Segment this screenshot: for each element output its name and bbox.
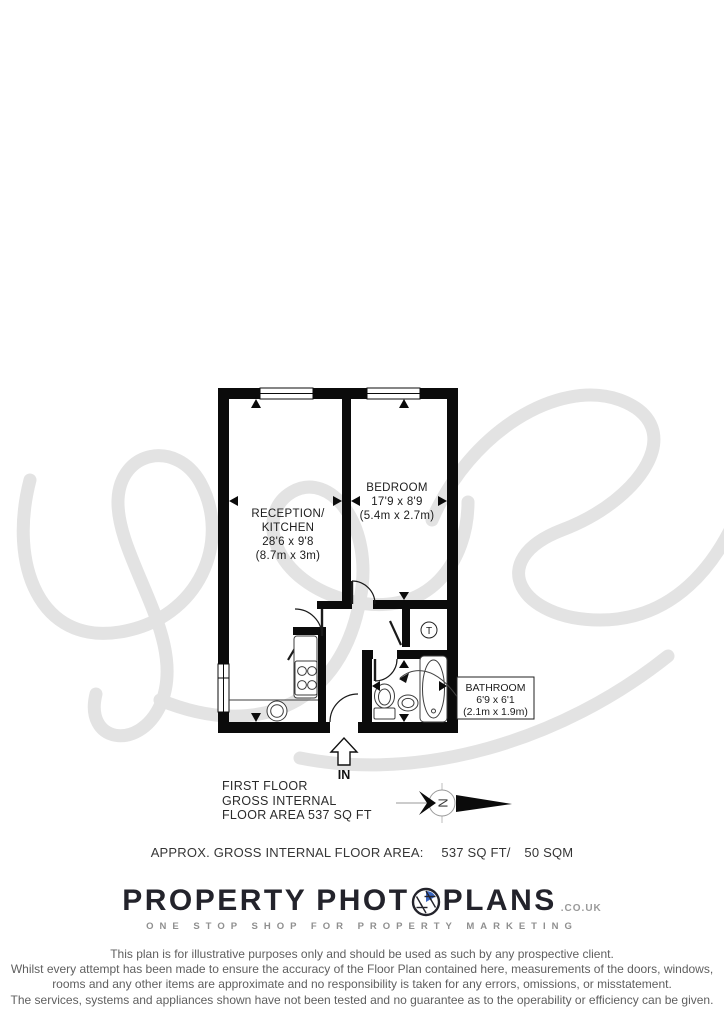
disclaimer-line4: The services, systems and appliances sho… bbox=[0, 993, 724, 1008]
basin-icon bbox=[398, 695, 418, 711]
brand-word-plans: PLANS bbox=[443, 883, 557, 919]
arrow-down-bathroom bbox=[399, 714, 409, 722]
arrow-up-reception bbox=[251, 399, 261, 408]
bathroom-callout: BATHROOM 6'9 x 6'1 (2.1m x 1.9m) bbox=[399, 671, 534, 719]
entrance-arrow-icon bbox=[331, 738, 357, 765]
bedroom-door bbox=[352, 581, 375, 604]
window-kitchen-left bbox=[218, 664, 229, 712]
window-bedroom-top bbox=[367, 388, 420, 399]
bedroom-label: BEDROOM bbox=[366, 482, 428, 494]
disclaimer: This plan is for illustrative purposes o… bbox=[0, 947, 724, 1008]
area-summary-metric: 50 SQM bbox=[524, 845, 573, 860]
bathtub-icon bbox=[420, 656, 447, 722]
brand-logo: PROPERTY PHOT PLANS .CO.UK bbox=[0, 883, 724, 919]
floor-plan: T RECEPTION/ KITCHEN 28'6 x 9'8 (8.7m x … bbox=[0, 0, 724, 1024]
arrow-down-reception bbox=[251, 713, 261, 722]
kitchen-fixtures bbox=[229, 636, 318, 721]
stove-icon bbox=[295, 661, 317, 695]
bedroom-dims-ft: 17'9 x 8'9 bbox=[371, 496, 423, 508]
area-summary-label: APPROX. GROSS INTERNAL FLOOR AREA: bbox=[151, 845, 424, 860]
bathroom-door bbox=[375, 659, 397, 681]
reception-dims-ft: 28'6 x 9'8 bbox=[262, 536, 314, 548]
brand-word-property: PROPERTY bbox=[122, 883, 307, 919]
toilet-icon bbox=[374, 684, 395, 719]
entrance-marker: IN bbox=[331, 738, 357, 782]
brand-domain: .CO.UK bbox=[561, 903, 602, 919]
reception-label-2: KITCHEN bbox=[262, 522, 315, 534]
tank-symbol: T bbox=[421, 622, 437, 638]
bathroom-dims-m: (2.1m x 1.9m) bbox=[463, 706, 528, 718]
disclaimer-line3: rooms and any other items are approximat… bbox=[0, 977, 724, 992]
bedroom-dims-m: (5.4m x 2.7m) bbox=[360, 510, 435, 522]
floorplan-page: T RECEPTION/ KITCHEN 28'6 x 9'8 (8.7m x … bbox=[0, 0, 724, 1024]
brand-word-photo: PHOT bbox=[316, 883, 409, 919]
camera-aperture-icon bbox=[411, 887, 441, 917]
arrow-right-reception bbox=[333, 496, 342, 506]
arrow-up-bedroom bbox=[399, 399, 409, 408]
sink-icon bbox=[267, 701, 287, 721]
arrow-down-bedroom bbox=[399, 592, 409, 600]
reception-dims-m: (8.7m x 3m) bbox=[256, 550, 321, 562]
arrow-left-bedroom bbox=[351, 496, 360, 506]
compass-north-letter: N bbox=[436, 798, 451, 807]
entrance-door bbox=[330, 694, 358, 722]
reception-label-1: RECEPTION/ bbox=[251, 508, 325, 520]
arrow-left-reception bbox=[229, 496, 238, 506]
area-summary-imperial: 537 SQ FT/ bbox=[441, 845, 510, 860]
cupboard-door bbox=[390, 621, 401, 645]
floor-summary-line2: GROSS INTERNAL bbox=[222, 794, 372, 809]
floor-summary-line1: FIRST FLOOR bbox=[222, 779, 372, 794]
bathroom-label: BATHROOM bbox=[466, 682, 526, 694]
disclaimer-line2: Whilst every attempt has been made to en… bbox=[0, 962, 724, 977]
floor-summary: FIRST FLOOR GROSS INTERNAL FLOOR AREA 53… bbox=[222, 779, 372, 823]
area-summary: APPROX. GROSS INTERNAL FLOOR AREA: 537 S… bbox=[0, 845, 724, 860]
window-reception-top bbox=[260, 388, 313, 399]
brand-tagline: ONE STOP SHOP FOR PROPERTY MARKETING bbox=[0, 921, 724, 932]
arrow-right-bedroom bbox=[438, 496, 447, 506]
disclaimer-line1: This plan is for illustrative purposes o… bbox=[0, 947, 724, 962]
tank-letter: T bbox=[426, 626, 432, 637]
bathroom-dims-ft: 6'9 x 6'1 bbox=[476, 694, 515, 706]
arrow-up-bathroom bbox=[399, 660, 409, 668]
compass-icon: N bbox=[396, 783, 512, 823]
floor-summary-line3: FLOOR AREA 537 SQ FT bbox=[222, 808, 372, 823]
